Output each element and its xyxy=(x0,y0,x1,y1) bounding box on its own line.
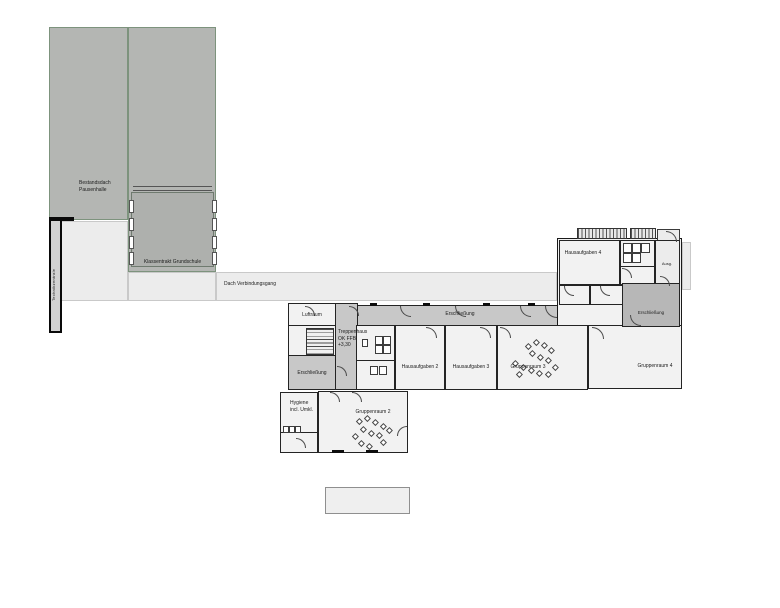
wc-fixture xyxy=(383,336,391,345)
window-mark xyxy=(212,200,217,213)
window-mark xyxy=(129,252,134,265)
walkway-left-area xyxy=(61,221,128,301)
window-tick xyxy=(332,450,344,453)
sink-fixture xyxy=(295,426,301,433)
roof-joint-line xyxy=(133,186,212,191)
wc-fixture xyxy=(375,336,383,345)
stair-annex-core xyxy=(335,303,358,390)
window-tick xyxy=(483,303,490,306)
window-tick xyxy=(370,303,377,306)
walkway-corridor xyxy=(216,272,557,301)
exit-ramp xyxy=(682,242,691,290)
wc-fixture xyxy=(641,243,650,253)
room-technikzentrale xyxy=(49,219,62,333)
wc-fixture xyxy=(623,243,632,253)
window-mark xyxy=(129,236,134,249)
wc-fixture xyxy=(632,243,641,253)
room-hausaufgaben-2 xyxy=(395,325,445,390)
wc-fixture xyxy=(383,345,391,354)
window-mark xyxy=(212,252,217,265)
roof-deck-hatch xyxy=(630,228,656,239)
legend-box xyxy=(325,487,410,514)
wc-fixture xyxy=(632,253,641,263)
window-tick xyxy=(366,450,378,453)
canopy-pausenhalle xyxy=(49,27,128,220)
room-wc-2 xyxy=(356,360,395,390)
window-mark xyxy=(129,200,134,213)
window-mark xyxy=(129,218,134,231)
wc-fixture xyxy=(362,339,368,347)
roof-deck-hatch xyxy=(577,228,627,239)
window-mark xyxy=(212,236,217,249)
room-hausaufgaben-4 xyxy=(559,240,620,285)
walkway-mid-area xyxy=(128,272,216,301)
window-mark xyxy=(212,218,217,231)
window-tick xyxy=(423,303,430,306)
wc-fixture xyxy=(623,253,632,263)
floor-plan: Dach Verbindungsgang BestandsdachPausenh… xyxy=(0,0,780,608)
wc-fixture xyxy=(375,345,383,354)
wc-fixture xyxy=(370,366,378,375)
room-klassentrakt xyxy=(131,192,214,267)
stairs xyxy=(306,328,334,355)
wc-fixture xyxy=(379,366,387,375)
room-erschliessung-left xyxy=(288,355,336,390)
